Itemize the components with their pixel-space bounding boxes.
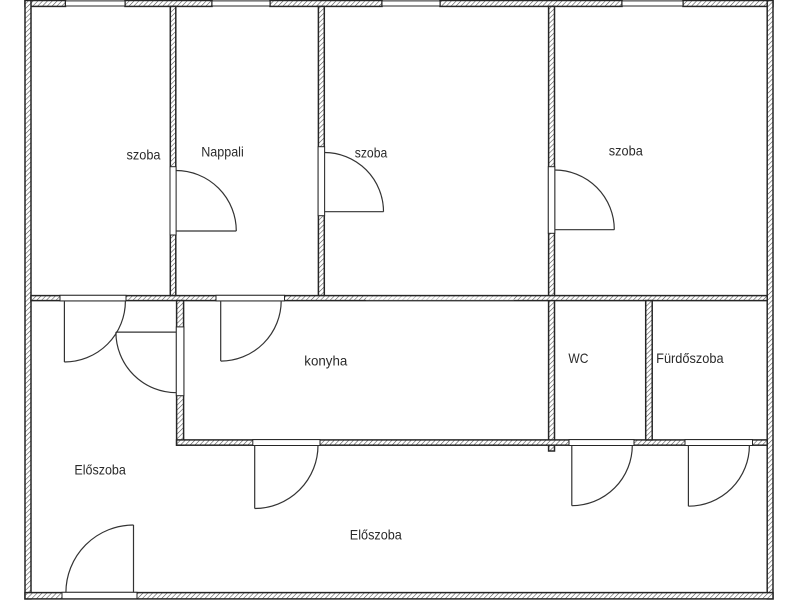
svg-text:szoba: szoba: [609, 143, 643, 158]
svg-text:Előszoba: Előszoba: [350, 527, 402, 542]
svg-text:WC: WC: [568, 351, 588, 366]
svg-text:Előszoba: Előszoba: [74, 462, 126, 477]
svg-text:konyha: konyha: [304, 353, 347, 368]
svg-text:Fürdőszoba: Fürdőszoba: [656, 351, 724, 366]
svg-text:szoba: szoba: [127, 148, 161, 163]
svg-text:szoba: szoba: [355, 145, 388, 160]
svg-text:Nappali: Nappali: [201, 145, 244, 160]
